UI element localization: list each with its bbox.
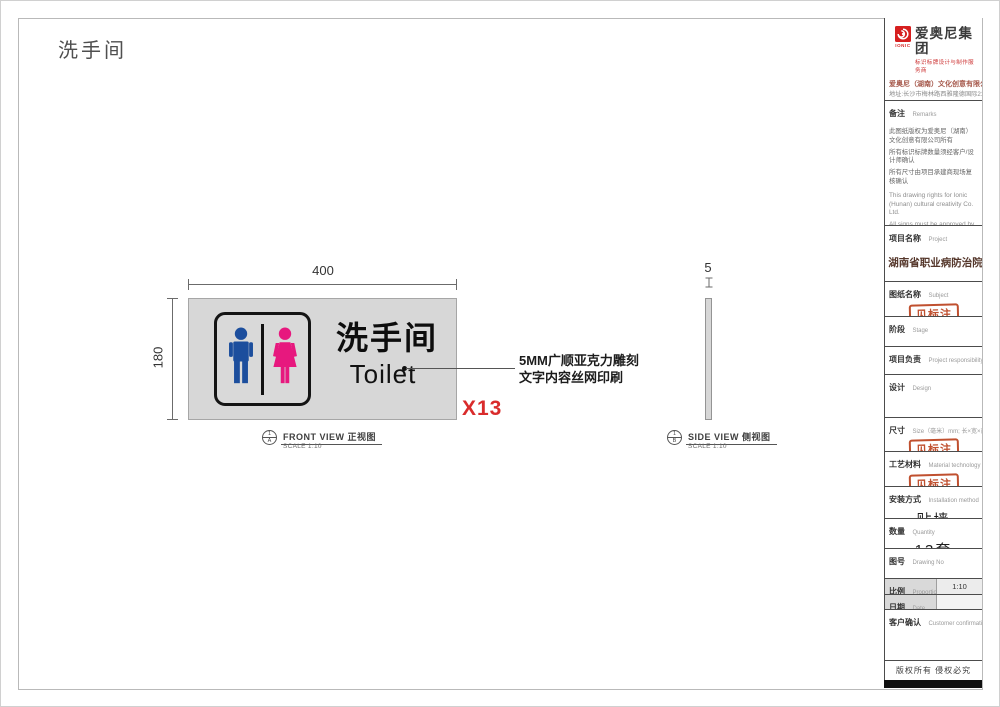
responsibility-label-cn: 项目负责 — [889, 355, 921, 364]
material-annotation: 5MM广顺亚克力雕刻 文字内容丝网印刷 — [519, 352, 639, 386]
dim-width-tick-left — [188, 279, 189, 290]
company-tagline: 标识标牌设计与制作服务商 — [915, 58, 978, 74]
drawing-no-label-en: Drawing No — [912, 560, 943, 566]
pictogram-divider — [261, 324, 264, 395]
remark-en-1: This drawing rights for Ionic (Hunan) cu… — [889, 192, 978, 218]
design-section: 设计 Design — [884, 374, 982, 417]
drawing-no-section: 图号 Drawing No — [884, 548, 982, 578]
sign-text-chinese: 洗手间 — [323, 321, 451, 355]
proportion-section: 比例 Proportion 1:10 — [884, 578, 982, 594]
drawing-no-label-cn: 图号 — [889, 557, 905, 566]
design-label-cn: 设计 — [889, 383, 905, 392]
quantity-label-cn: 数量 — [889, 527, 905, 536]
responsibility-section: 项目负责 Project responsibility — [884, 346, 982, 374]
customer-label-en: Customer confirmation — [928, 621, 982, 627]
copyright-text: 版权所有 侵权必究 — [896, 665, 971, 676]
dim-thickness-text: 5 — [698, 260, 718, 275]
project-label-en: Project — [928, 237, 947, 243]
quantity-value: 13套 — [889, 539, 978, 548]
installation-section: 安装方式 Installation method 贴墙 — [884, 486, 982, 518]
project-label-cn: 项目名称 — [889, 234, 921, 243]
sign-text-english: Toilet — [323, 359, 443, 390]
dim-height-tick-bottom — [167, 419, 178, 420]
remark-cn-1: 此图纸版权为爱奥尼（湖南）文化创意有限公司所有 — [889, 128, 978, 145]
size-label-en: Size（毫米）mm; 长×宽×高 — [912, 429, 982, 435]
remarks-label-en: Remarks — [912, 112, 936, 118]
front-view-ref-letter: A — [268, 438, 272, 444]
company-address: 地址:长沙市梅林路西雅隆德国际2122室 — [889, 91, 978, 100]
dim-height-tick-top — [167, 298, 178, 299]
annotation-line-1: 5MM广顺亚克力雕刻 — [519, 352, 639, 369]
dim-height-line — [172, 298, 173, 420]
date-section: 日期 Date — [884, 594, 982, 609]
ionic-logo-icon — [895, 26, 911, 42]
front-view-ref-bubble: 1 A — [262, 430, 277, 445]
quantity-label-en: Quantity — [912, 530, 934, 536]
side-view-ref-bubble: 1 B — [667, 430, 682, 445]
subject-label-cn: 图纸名称 — [889, 290, 921, 299]
size-label-cn: 尺寸 — [889, 426, 905, 435]
material-section: 工艺材料 Material technology 见标注 — [884, 451, 982, 486]
installation-label-en: Installation method — [928, 498, 978, 504]
toilet-sign-front-view: 洗手间 Toilet — [188, 298, 457, 420]
company-name: 爱奥尼（湖南）文化创意有限公司 — [889, 79, 978, 89]
material-label-cn: 工艺材料 — [889, 460, 921, 469]
thickness-dim-ticks — [704, 277, 714, 288]
material-label-en: Material technology — [928, 463, 980, 469]
stage-label-cn: 阶段 — [889, 325, 905, 334]
size-section: 尺寸 Size（毫米）mm; 长×宽×高 见标注 — [884, 417, 982, 451]
ionic-logo: IONIC — [895, 26, 911, 48]
remark-cn-2: 所有标识标牌数量须经客户/设计师确认 — [889, 149, 978, 166]
installation-value: 贴墙 — [889, 509, 978, 518]
project-section: 项目名称 Project 湖南省职业病防治院 — [884, 225, 982, 281]
front-view-ref-number: 1 — [263, 431, 276, 438]
subject-section: 图纸名称 Subject 见标注 — [884, 281, 982, 316]
subject-label-en: Subject — [928, 293, 948, 299]
restroom-pictogram-box — [214, 312, 311, 406]
leader-line — [406, 368, 515, 369]
side-view-ref-number: 1 — [668, 431, 681, 438]
quantity-section: 数量 Quantity 13套 — [884, 518, 982, 548]
installation-label-cn: 安装方式 — [889, 495, 921, 504]
remarks-label-cn: 备注 — [889, 109, 905, 118]
material-see-annotation-stamp: 见标注 — [908, 473, 959, 486]
female-restroom-icon — [268, 321, 302, 399]
drawing-sheet: 洗手间 400 180 — [0, 0, 1000, 707]
copyright-row: 版权所有 侵权必究 — [884, 660, 982, 680]
stage-section: 阶段 Stage — [884, 316, 982, 346]
design-label-en: Design — [912, 386, 931, 392]
male-restroom-icon — [224, 321, 258, 399]
size-see-annotation-stamp: 见标注 — [908, 438, 959, 451]
proportion-label-cn: 比例 — [889, 587, 905, 594]
titleblock-bottom-bar — [884, 680, 982, 688]
subject-see-annotation-stamp: 见标注 — [908, 303, 959, 316]
dim-width-text: 400 — [288, 263, 358, 278]
toilet-sign-side-view — [705, 298, 712, 420]
stage-label-en: Stage — [912, 328, 928, 334]
date-value — [937, 595, 982, 609]
titleblock-header: IONIC 爱奥尼集团 标识标牌设计与制作服务商 爱奥尼（湖南）文化创意有限公司… — [884, 18, 982, 100]
side-view-scale: SCALE 1:10 — [688, 443, 727, 450]
project-name: 湖南省职业病防治院 — [888, 255, 982, 270]
remarks-section: 备注 Remarks 此图纸版权为爱奥尼（湖南）文化创意有限公司所有 所有标识标… — [884, 100, 982, 225]
dim-width-line — [188, 284, 457, 285]
customer-confirmation-section: 客户确认 Customer confirmation — [884, 609, 982, 660]
quantity-mark: X13 — [462, 397, 502, 421]
page-title: 洗手间 — [58, 34, 127, 63]
customer-label-cn: 客户确认 — [889, 618, 921, 627]
ionic-brand-text: IONIC — [895, 43, 911, 48]
dim-width-tick-right — [456, 279, 457, 290]
remark-cn-3: 所有尺寸由项目承建商现场复核确认 — [889, 169, 978, 186]
proportion-value: 1:10 — [937, 579, 982, 594]
annotation-line-2: 文字内容丝网印刷 — [519, 369, 639, 386]
company-group-name: 爱奥尼集团 — [915, 26, 978, 56]
front-view-scale: SCALE 1:10 — [283, 443, 322, 450]
side-view-ref-letter: B — [673, 438, 677, 444]
responsibility-label-en: Project responsibility — [928, 358, 982, 364]
dim-height-text: 180 — [151, 343, 166, 373]
